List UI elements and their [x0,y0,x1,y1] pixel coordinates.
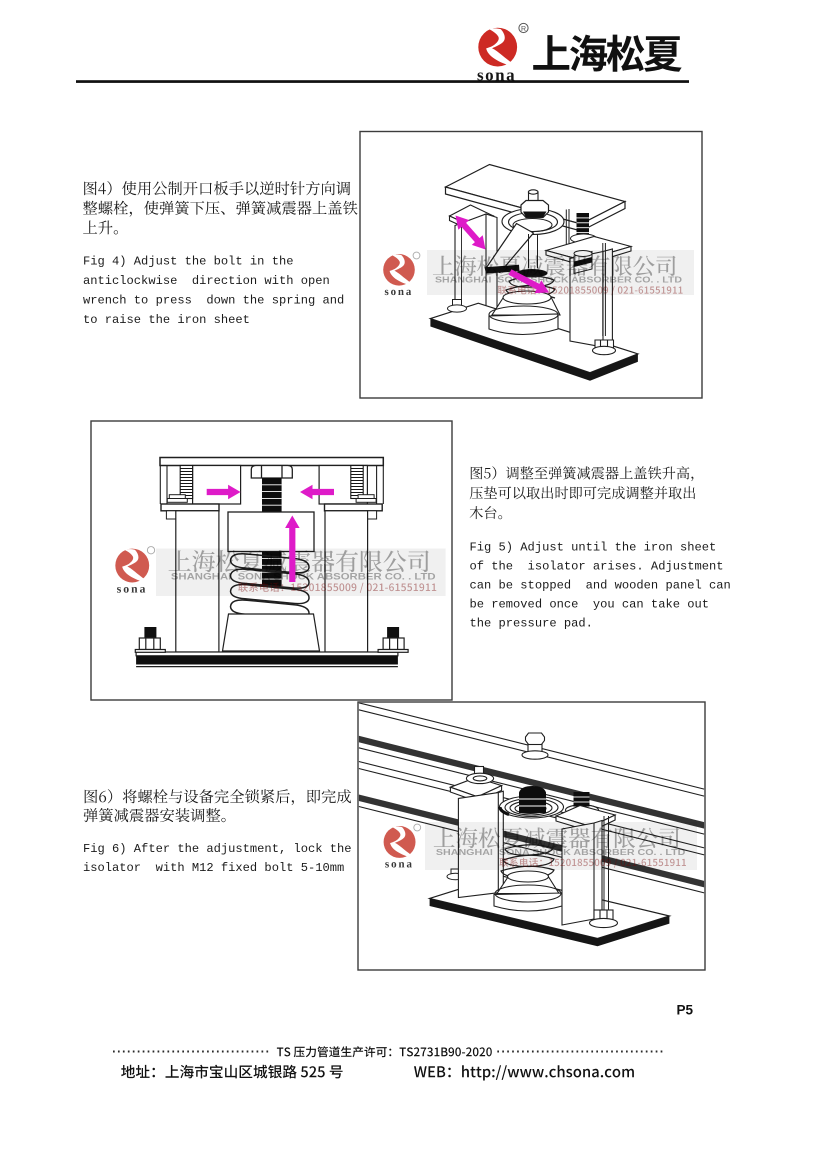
svg-text:be removed once you can take: be removed once you can take out [470,598,710,612]
svg-text:wrench to press down the spri: wrench to press down the spring and [83,294,344,308]
svg-text:of the isolator arises. Adjus: of the isolator arises. Adjustment [470,559,724,573]
svg-text:SHANGHAI SONA SHOCK ABSORBER: SHANGHAI SONA SHOCK ABSORBER CO. . LTD [436,847,685,857]
svg-text:P5: P5 [677,1003,694,1018]
svg-text:R: R [521,26,526,33]
svg-text:SHANGHAI SONA SHOCK ABSORBER: SHANGHAI SONA SHOCK ABSORBER CO. . LTD [171,571,436,581]
svg-text:SHANGHAI SONA SHOCK ABSORBER: SHANGHAI SONA SHOCK ABSORBER CO. . LTD [435,275,682,285]
svg-text:Fig 5) Adjust until the iron s: Fig 5) Adjust until the iron sheet [470,541,717,555]
svg-text:anticlockwise direction with: anticlockwise direction with open [83,274,330,288]
svg-text:Fig 4) Adjust the bolt in the: Fig 4) Adjust the bolt in the [83,254,293,268]
svg-text:can be stopped and wooden pan: can be stopped and wooden panel can [470,578,731,592]
svg-text:to raise the iron sheet: to raise the iron sheet [83,313,250,327]
svg-text:Fig 6) After the adjustment, l: Fig 6) After the adjustment, lock the [83,842,352,856]
svg-text:the pressure pad.: the pressure pad. [470,617,593,631]
svg-text:isolator with M12 fixed bolt: isolator with M12 fixed bolt 5-10mm [83,861,344,875]
